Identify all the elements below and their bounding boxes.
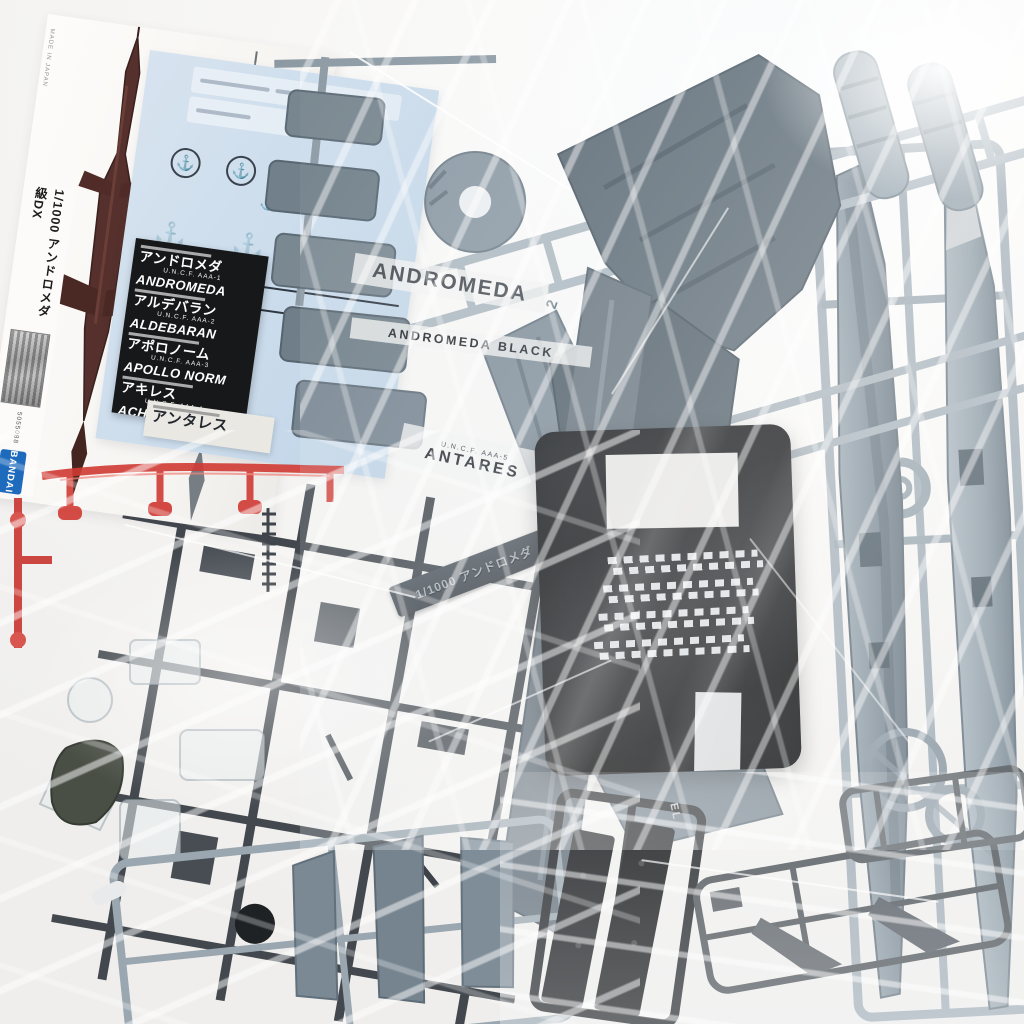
runner-funnel-parts	[236, 36, 496, 453]
spring-parts	[262, 508, 276, 592]
runner-clear-red	[10, 466, 344, 648]
sprue-layer-front	[0, 0, 1024, 1024]
hull-vent-rows	[590, 549, 770, 670]
hull-white-panel	[606, 453, 739, 529]
hull-white-tab	[694, 692, 741, 776]
black-hull-part	[534, 424, 802, 777]
dark-part	[51, 741, 123, 825]
photo-canvas: MADE IN JAPAN	[0, 0, 1024, 1024]
